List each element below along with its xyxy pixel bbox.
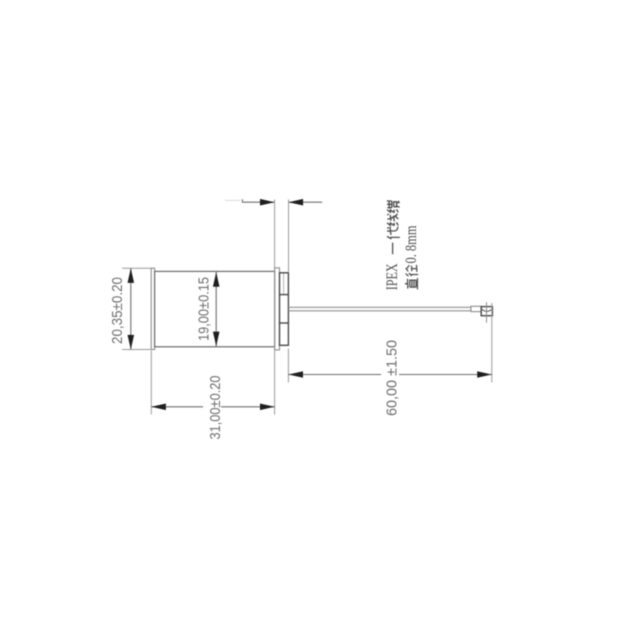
svg-text:19,00±0.15: 19,00±0.15 (196, 277, 213, 341)
svg-text:60,00 ±1.50: 60,00 ±1.50 (384, 340, 401, 416)
svg-text:0. 8mm: 0. 8mm (403, 225, 420, 263)
svg-text:31,00±0.20: 31,00±0.20 (207, 376, 224, 440)
svg-text:20,35±0.20: 20,35±0.20 (109, 277, 126, 344)
svg-text:IPEX: IPEX (384, 263, 401, 290)
